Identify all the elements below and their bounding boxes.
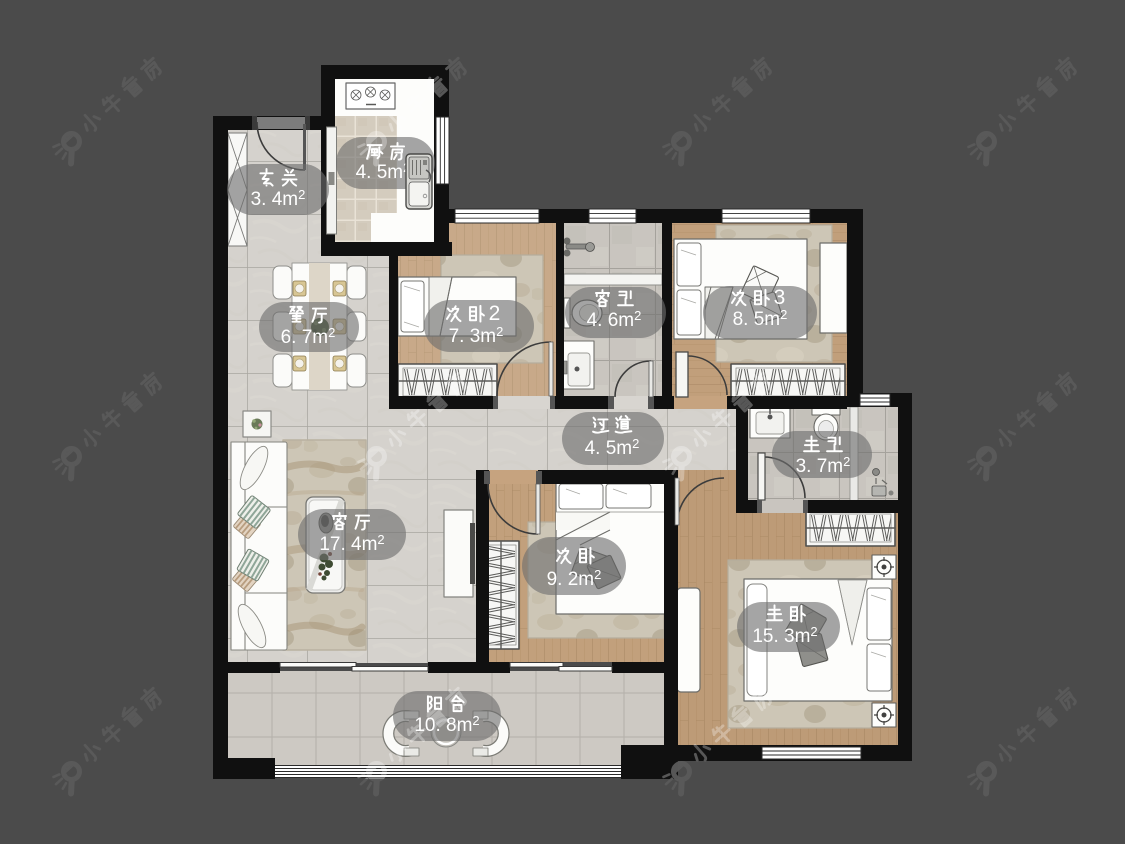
svg-text:4. 5m2: 4. 5m2 <box>356 160 411 183</box>
svg-text:17. 4m2: 17. 4m2 <box>319 532 384 555</box>
svg-text:2: 2 <box>489 302 502 325</box>
svg-text:4. 6m2: 4. 6m2 <box>587 308 642 331</box>
svg-text:7. 3m2: 7. 3m2 <box>449 324 504 347</box>
svg-text:6. 7m2: 6. 7m2 <box>281 325 336 348</box>
svg-text:10. 8m2: 10. 8m2 <box>414 713 479 736</box>
svg-text:3. 7m2: 3. 7m2 <box>796 454 851 477</box>
svg-text:3: 3 <box>774 286 787 309</box>
svg-text:8. 5m2: 8. 5m2 <box>733 307 788 330</box>
svg-text:3. 4m2: 3. 4m2 <box>251 187 306 210</box>
svg-text:15. 3m2: 15. 3m2 <box>752 624 817 647</box>
svg-text:4. 5m2: 4. 5m2 <box>585 436 640 459</box>
svg-text:9. 2m2: 9. 2m2 <box>547 567 602 590</box>
